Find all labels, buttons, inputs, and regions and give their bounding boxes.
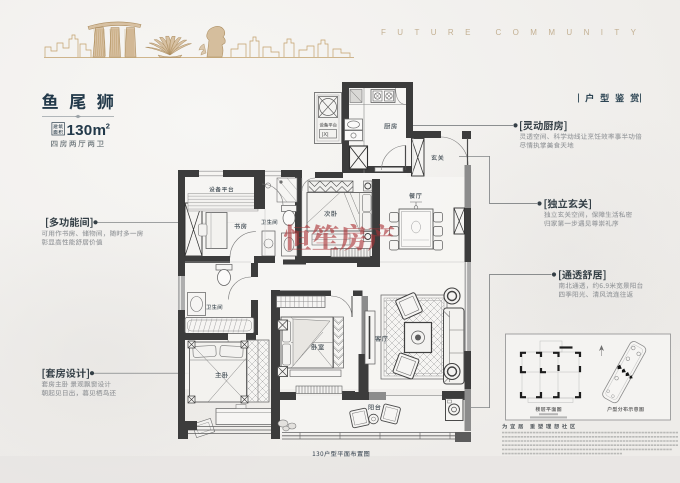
svg-text:FUTURE COMMUNITY: FUTURE COMMUNITY xyxy=(381,28,647,37)
svg-text:2: 2 xyxy=(106,122,110,131)
svg-text:130m: 130m xyxy=(67,122,107,139)
svg-text:|X|: |X| xyxy=(322,132,329,138)
